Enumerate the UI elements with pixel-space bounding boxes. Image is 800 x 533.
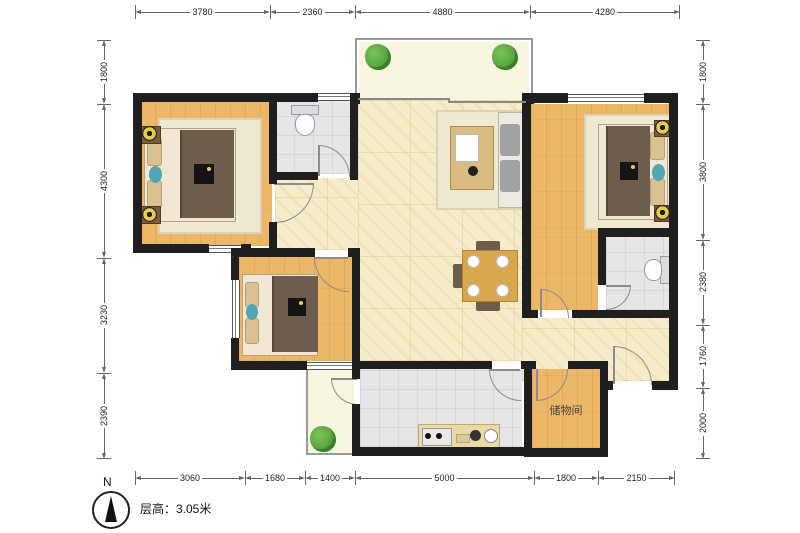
wall-segment bbox=[528, 93, 568, 103]
compass-icon bbox=[92, 491, 130, 529]
toilet bbox=[644, 259, 662, 281]
dim-label: 3060 bbox=[178, 473, 202, 483]
toilet bbox=[295, 114, 315, 136]
burner-icon bbox=[436, 433, 442, 439]
dim-label: 1680 bbox=[263, 473, 287, 483]
wall-segment bbox=[133, 93, 318, 102]
tray bbox=[455, 134, 479, 162]
sofa-cushion bbox=[500, 160, 520, 192]
door-leaf bbox=[613, 346, 615, 384]
sink bbox=[470, 430, 481, 441]
plate bbox=[467, 284, 480, 297]
bed-throw bbox=[149, 166, 162, 183]
dim-segment: 3800 bbox=[696, 104, 710, 240]
wall-segment bbox=[352, 361, 492, 369]
dim-segment: 3230 bbox=[97, 258, 111, 373]
wall-segment bbox=[352, 248, 360, 370]
sink-basin bbox=[484, 429, 498, 443]
wall-segment bbox=[572, 310, 608, 318]
dim-segment: 4300 bbox=[97, 104, 111, 258]
dim-label: 1760 bbox=[698, 344, 708, 368]
burner-icon bbox=[425, 433, 431, 439]
dim-label: 5000 bbox=[432, 473, 456, 483]
wall-segment bbox=[133, 244, 209, 253]
compass-north-label: N bbox=[103, 475, 112, 489]
dim-segment: 2360 bbox=[270, 5, 355, 19]
wall-segment bbox=[275, 172, 318, 180]
pillow bbox=[147, 180, 162, 208]
wall-segment bbox=[231, 248, 315, 257]
bed-tray bbox=[288, 298, 306, 316]
bed-throw bbox=[246, 304, 258, 320]
sliding-door-track bbox=[448, 98, 450, 103]
cutting-board bbox=[456, 434, 470, 443]
window bbox=[318, 93, 352, 101]
wall-segment bbox=[350, 93, 358, 180]
dim-label: 2390 bbox=[99, 404, 109, 428]
wall-segment bbox=[524, 448, 608, 457]
door-leaf bbox=[314, 257, 348, 259]
door-leaf bbox=[489, 369, 520, 371]
dim-segment: 2390 bbox=[97, 373, 111, 459]
dim-segment: 1680 bbox=[245, 471, 305, 485]
bed-tray bbox=[620, 162, 638, 180]
dim-label: 1800 bbox=[554, 473, 578, 483]
dim-label: 3780 bbox=[190, 7, 214, 17]
compass-needle-icon bbox=[105, 496, 117, 522]
plant-icon bbox=[492, 44, 518, 70]
wall-segment bbox=[600, 361, 608, 457]
lamp-icon bbox=[142, 207, 157, 222]
dimension-chain-right: 1800 3800 2380 1760 2000 bbox=[696, 40, 710, 459]
pillow bbox=[650, 178, 665, 206]
bed-throw bbox=[652, 164, 665, 181]
dim-label: 3800 bbox=[698, 160, 708, 184]
dim-segment: 3060 bbox=[135, 471, 245, 485]
bed-tray bbox=[194, 164, 214, 184]
dim-segment: 2380 bbox=[696, 240, 710, 325]
lamp-icon bbox=[655, 205, 670, 220]
dim-segment: 3780 bbox=[135, 5, 270, 19]
wall-segment bbox=[269, 93, 277, 184]
dim-segment: 5000 bbox=[355, 471, 534, 485]
dim-label: 2150 bbox=[624, 473, 648, 483]
wall-segment bbox=[231, 361, 307, 370]
wall-segment bbox=[522, 93, 531, 318]
dim-label: 2380 bbox=[698, 270, 708, 294]
sofa-cushion bbox=[500, 124, 520, 156]
window bbox=[232, 280, 240, 338]
dimension-chain-bottom: 3060 1680 1400 5000 1800 2150 bbox=[135, 471, 675, 485]
dim-label: 1800 bbox=[698, 60, 708, 84]
dim-label: 4880 bbox=[430, 7, 454, 17]
lamp-icon bbox=[142, 126, 157, 141]
plate bbox=[496, 284, 509, 297]
wall-segment bbox=[598, 228, 678, 237]
door-leaf bbox=[540, 289, 542, 317]
door-leaf bbox=[274, 183, 314, 185]
wall-segment bbox=[522, 310, 538, 318]
door-leaf bbox=[318, 145, 320, 176]
wall-segment bbox=[606, 310, 678, 318]
pillow bbox=[245, 318, 259, 344]
dim-label: 4280 bbox=[593, 7, 617, 17]
door-leaf bbox=[606, 285, 630, 287]
dim-label: 1400 bbox=[318, 473, 342, 483]
dim-segment: 1800 bbox=[534, 471, 598, 485]
wall-segment bbox=[652, 381, 678, 390]
wall-segment bbox=[669, 93, 678, 390]
table-decor bbox=[468, 166, 478, 176]
door-leaf bbox=[536, 369, 538, 400]
plate bbox=[496, 255, 509, 268]
sliding-door-track bbox=[358, 98, 450, 100]
dim-segment: 1800 bbox=[97, 40, 111, 104]
dim-segment: 1800 bbox=[696, 40, 710, 104]
floor-height-note: 层高：3.05米 bbox=[140, 500, 211, 517]
storage-room-label: 储物间 bbox=[532, 402, 600, 418]
dim-segment: 1760 bbox=[696, 325, 710, 388]
dim-label: 2000 bbox=[698, 411, 708, 435]
dim-segment: 2000 bbox=[696, 388, 710, 459]
wall-segment bbox=[598, 228, 606, 285]
lamp-icon bbox=[655, 120, 670, 135]
dimension-chain-top: 3780 2360 4880 4280 bbox=[135, 5, 680, 19]
dim-label: 3230 bbox=[99, 303, 109, 327]
plant-icon bbox=[310, 426, 336, 452]
plant-icon bbox=[365, 44, 391, 70]
wall-segment bbox=[133, 93, 142, 253]
plate bbox=[467, 255, 480, 268]
sliding-door-track bbox=[448, 101, 526, 103]
dim-segment: 2150 bbox=[598, 471, 675, 485]
dim-label: 1800 bbox=[99, 60, 109, 84]
dim-segment: 4280 bbox=[530, 5, 680, 19]
window bbox=[307, 362, 352, 370]
dim-segment: 4880 bbox=[355, 5, 530, 19]
dim-label: 2360 bbox=[300, 7, 324, 17]
wall-segment bbox=[524, 361, 532, 457]
dim-label: 4300 bbox=[99, 169, 109, 193]
window bbox=[568, 94, 644, 102]
wall-segment bbox=[352, 447, 532, 456]
dimension-chain-left: 1800 4300 3230 2390 bbox=[97, 40, 111, 459]
floor-plan-page: 3780 2360 4880 4280 3060 1680 1400 5000 … bbox=[0, 0, 800, 533]
dim-segment: 1400 bbox=[305, 471, 355, 485]
